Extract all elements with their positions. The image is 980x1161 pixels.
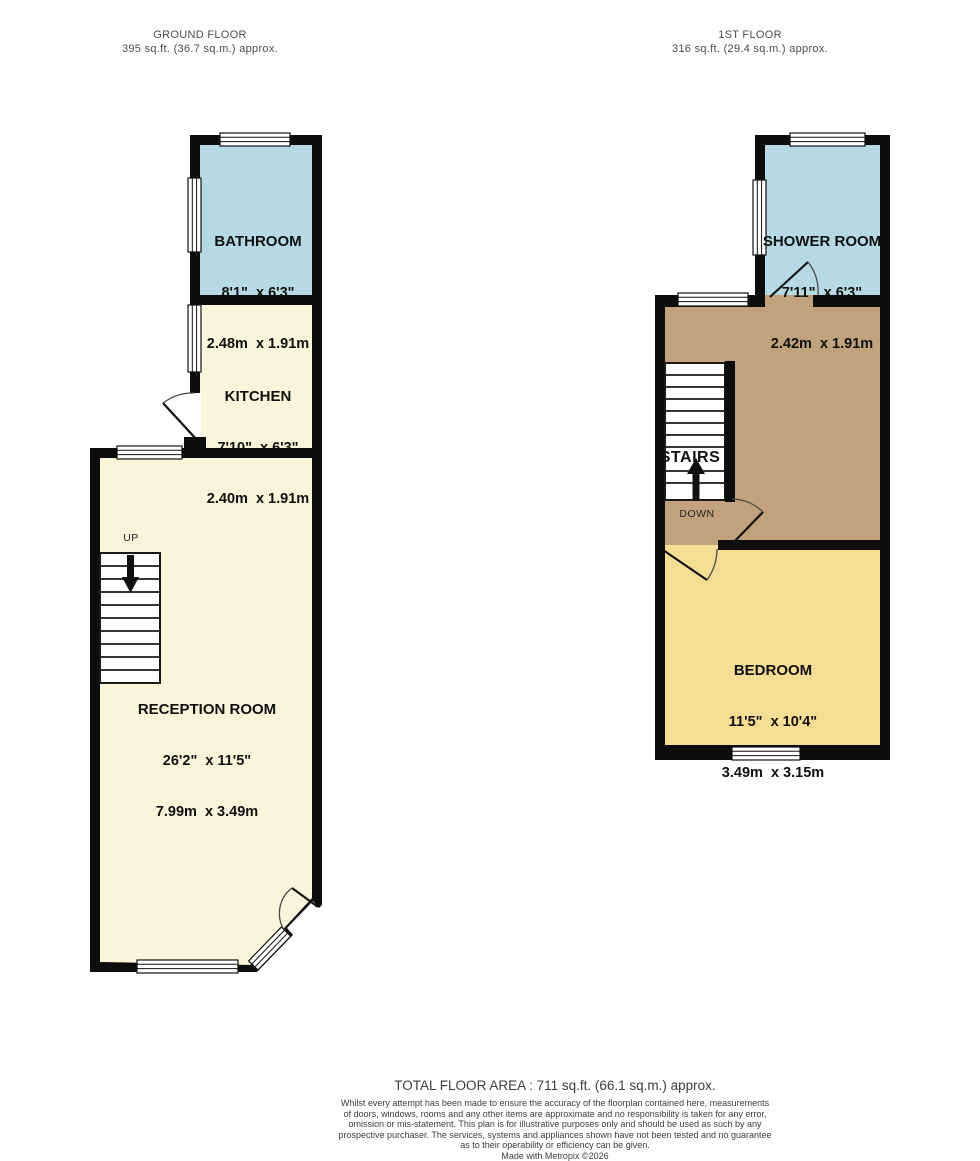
disclaimer-line: as to their operability or efficiency ca… xyxy=(155,1140,955,1151)
kitchen-name: KITCHEN xyxy=(193,389,323,405)
stairs-up-label: UP xyxy=(111,532,151,544)
metropix-credit: Made with Metropix ©2026 xyxy=(155,1151,955,1161)
reception-name: RECEPTION ROOM xyxy=(107,702,307,718)
kitchen-metric: 2.40m x 1.91m xyxy=(193,492,323,508)
floorplan-page: { "headers": { "ground": { "title": "GRO… xyxy=(0,0,980,1151)
bathroom-metric: 2.48m x 1.91m xyxy=(193,337,323,353)
kitchen-imperial: 7'10" x 6'3" xyxy=(193,441,323,457)
bedroom-imperial: 11'5" x 10'4" xyxy=(693,715,853,731)
stairs-label: STAIRS xyxy=(645,449,735,467)
shower-name: SHOWER ROOM xyxy=(757,234,887,250)
bathroom-top-window xyxy=(220,133,290,146)
stairs-down-label: DOWN xyxy=(667,508,727,520)
kitchen-label: KITCHEN 7'10" x 6'3" 2.40m x 1.91m xyxy=(193,353,323,526)
landing-top-window xyxy=(678,293,748,306)
reception-metric: 7.99m x 3.49m xyxy=(107,805,307,821)
bathroom-name: BATHROOM xyxy=(193,234,323,250)
shower-imperial: 7'11" x 6'3" xyxy=(757,286,887,302)
ground-floor-header: GROUND FLOOR 395 sq.ft. (36.7 sq.m.) app… xyxy=(75,28,325,56)
first-floor-title: 1ST FLOOR xyxy=(625,28,875,42)
bedroom-metric: 3.49m x 3.15m xyxy=(693,766,853,782)
bathroom-imperial: 8'1" x 6'3" xyxy=(193,286,323,302)
first-floor-area: 316 sq.ft. (29.4 sq.m.) approx. xyxy=(625,42,875,56)
ground-floor-staircase xyxy=(100,553,160,683)
total-floor-area: TOTAL FLOOR AREA : 711 sq.ft. (66.1 sq.m… xyxy=(155,1078,955,1093)
bedroom-name: BEDROOM xyxy=(693,663,853,679)
disclaimer-line: Whilst every attempt has been made to en… xyxy=(155,1098,955,1109)
reception-imperial: 26'2" x 11'5" xyxy=(107,754,307,770)
shower-metric: 2.42m x 1.91m xyxy=(757,337,887,353)
bathroom-label: BATHROOM 8'1" x 6'3" 2.48m x 1.91m xyxy=(193,198,323,371)
first-floor-staircase xyxy=(665,361,735,502)
shower-top-window xyxy=(790,133,865,146)
reception-top-window xyxy=(117,446,182,459)
reception-label: RECEPTION ROOM 26'2" x 11'5" 7.99m x 3.4… xyxy=(107,666,307,839)
ground-floor-area: 395 sq.ft. (36.7 sq.m.) approx. xyxy=(75,42,325,56)
bedroom-label: BEDROOM 11'5" x 10'4" 3.49m x 3.15m xyxy=(693,627,853,800)
shower-label: SHOWER ROOM 7'11" x 6'3" 2.42m x 1.91m xyxy=(757,198,887,371)
first-floor-header: 1ST FLOOR 316 sq.ft. (29.4 sq.m.) approx… xyxy=(625,28,875,56)
disclaimer: Whilst every attempt has been made to en… xyxy=(155,1098,955,1161)
ground-floor-title: GROUND FLOOR xyxy=(75,28,325,42)
reception-bottom-window xyxy=(137,960,238,973)
disclaimer-line: omission or mis-statement. This plan is … xyxy=(155,1119,955,1130)
footer: TOTAL FLOOR AREA : 711 sq.ft. (66.1 sq.m… xyxy=(155,1078,955,1161)
disclaimer-line: of doors, windows, rooms and any other i… xyxy=(155,1109,955,1120)
disclaimer-line: prospective purchaser. The services, sys… xyxy=(155,1130,955,1141)
